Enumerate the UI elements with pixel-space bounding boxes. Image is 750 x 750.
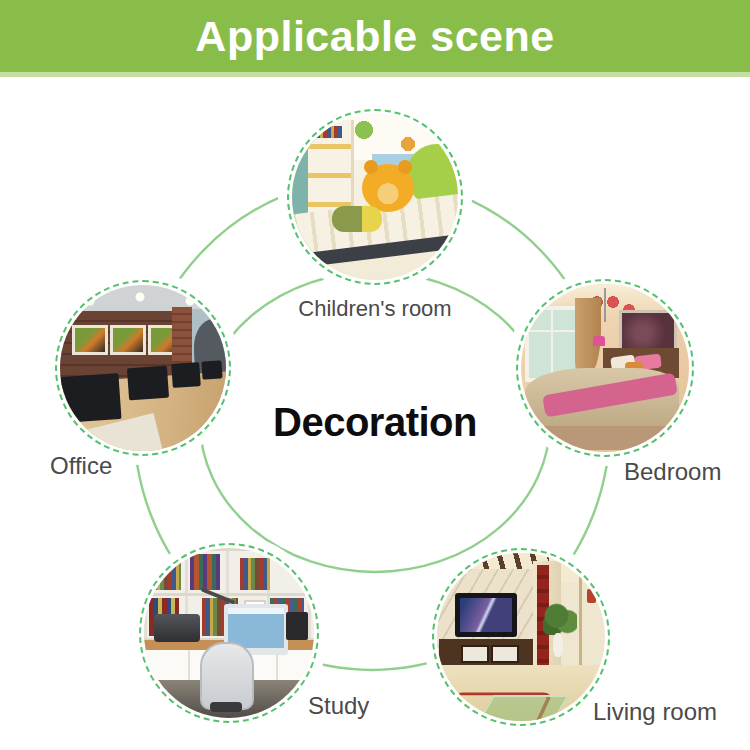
scene-node-study	[139, 543, 319, 723]
table-lamp	[593, 336, 605, 346]
label-bedroom: Bedroom	[624, 458, 721, 486]
scene-node-living-room	[432, 548, 610, 726]
book-row	[190, 554, 220, 590]
flat-tv	[455, 593, 517, 637]
second-screen	[286, 612, 308, 640]
wall-picture	[72, 325, 108, 355]
chair-base	[210, 702, 242, 712]
label-office: Office	[50, 452, 112, 480]
monitor	[201, 360, 222, 379]
cabinet-drawer	[491, 645, 519, 663]
label-study: Study	[308, 692, 369, 720]
scene-node-office	[55, 280, 231, 456]
living-room-photo	[437, 553, 605, 721]
green-plush	[332, 206, 382, 232]
wall-picture	[110, 325, 146, 355]
cabinet-drawer	[461, 645, 489, 663]
monitor	[171, 362, 201, 388]
monitor	[127, 366, 169, 401]
center-label: Decoration	[225, 400, 525, 445]
childrens-room-photo	[292, 114, 458, 280]
book-row	[240, 558, 270, 590]
label-childrens-room: Children's room	[250, 296, 500, 322]
office-chair	[200, 642, 254, 710]
bear-plush	[362, 164, 414, 212]
scene-node-childrens-room	[287, 109, 463, 285]
office-photo	[60, 285, 226, 451]
study-photo	[144, 548, 314, 718]
scene-node-bedroom	[516, 279, 694, 457]
printer	[154, 614, 200, 642]
label-living-room: Living room	[593, 698, 717, 726]
bedroom-photo	[521, 284, 689, 452]
applicable-scene-infographic: Applicable scene Decoration Children's r…	[0, 0, 750, 750]
